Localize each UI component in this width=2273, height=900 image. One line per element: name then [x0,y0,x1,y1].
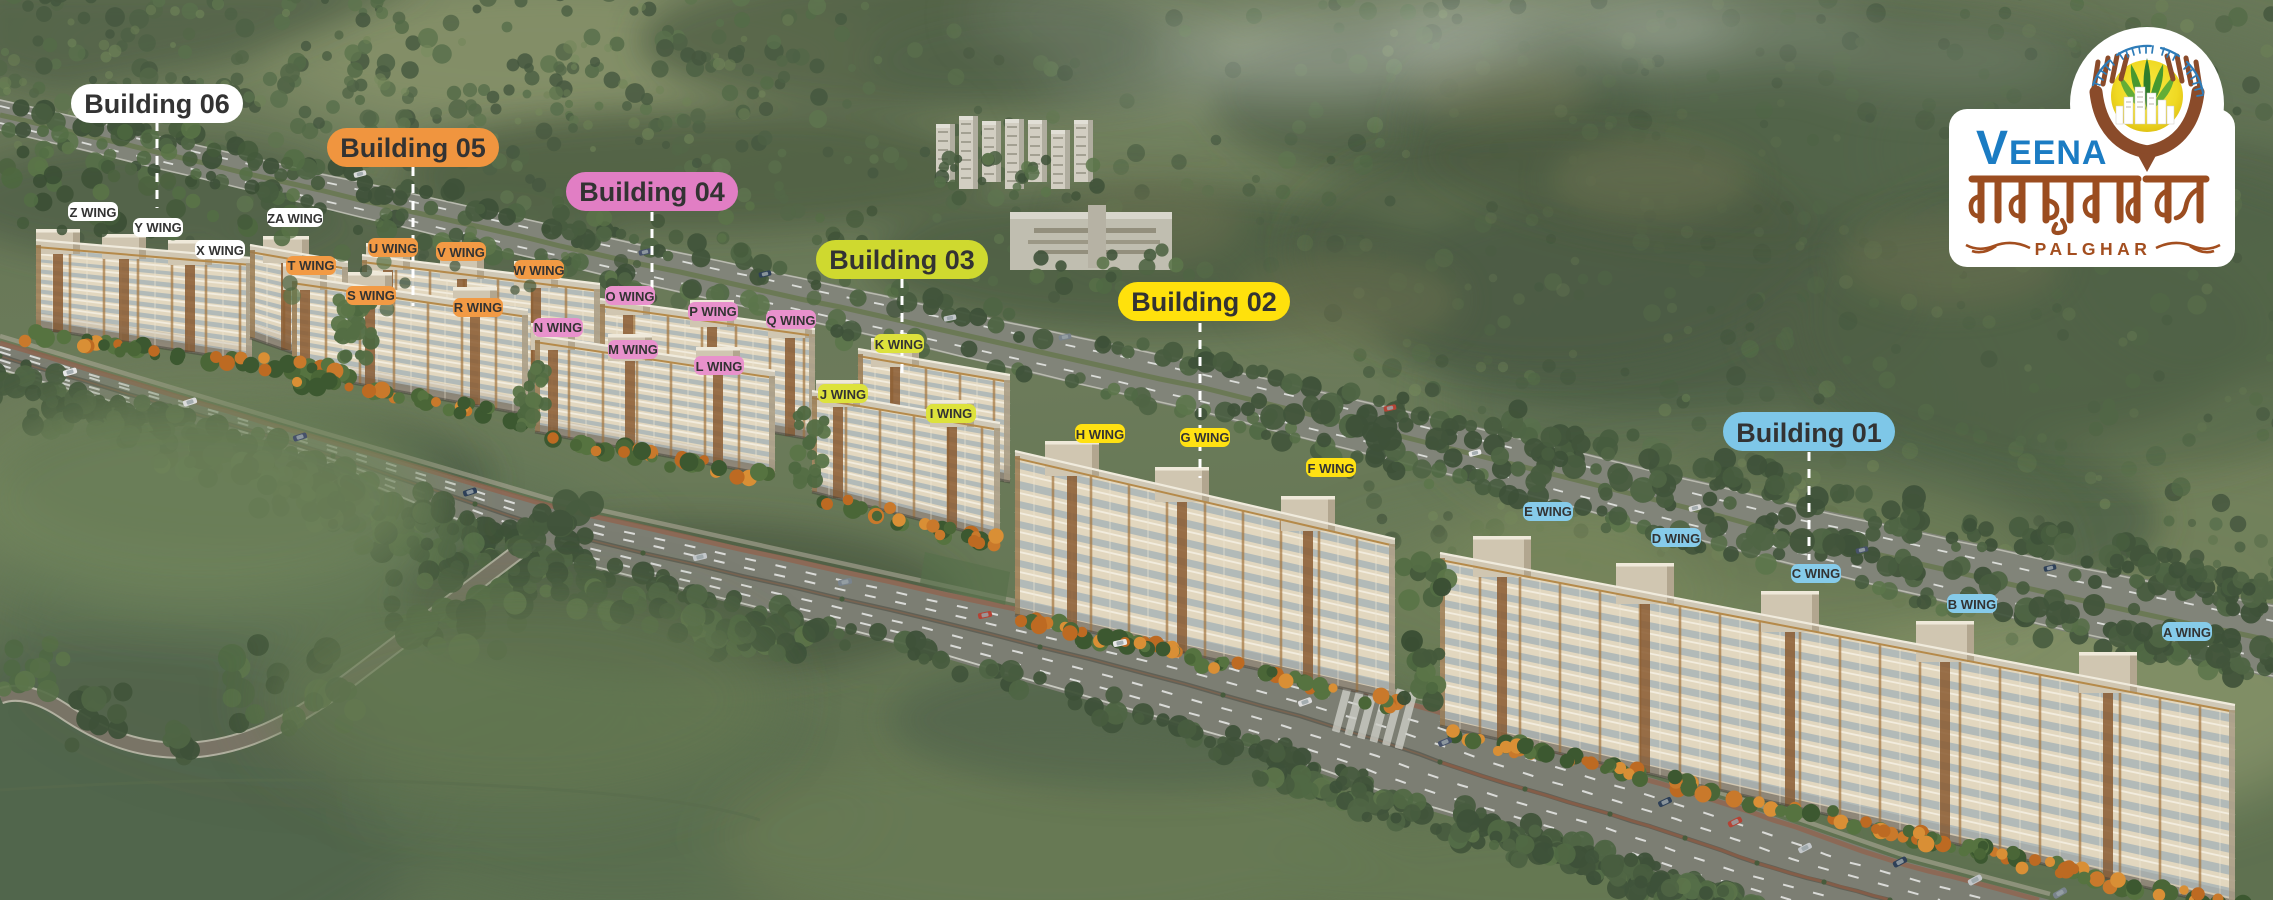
svg-text:PALGHAR: PALGHAR [2035,239,2152,259]
svg-text:Building 05: Building 05 [340,133,486,163]
svg-text:X WING: X WING [196,243,244,258]
svg-text:B WING: B WING [1948,597,1996,612]
svg-text:V WING: V WING [437,245,485,260]
svg-text:U WING: U WING [369,241,417,256]
svg-text:Building 01: Building 01 [1736,418,1882,448]
svg-text:Q WING: Q WING [766,313,815,328]
svg-text:N WING: N WING [534,320,582,335]
svg-text:Building 06: Building 06 [84,89,230,119]
svg-text:P WING: P WING [689,304,736,319]
svg-text:S WING: S WING [347,288,395,303]
svg-text:C WING: C WING [1792,566,1840,581]
svg-text:Z WING: Z WING [70,205,117,220]
svg-text:W WING: W WING [513,263,564,278]
svg-text:H WING: H WING [1076,427,1124,442]
svg-text:R WING: R WING [454,300,502,315]
svg-text:F WING: F WING [1308,461,1355,476]
svg-text:A WING: A WING [2163,625,2211,640]
svg-text:E WING: E WING [1524,504,1572,519]
svg-text:K WING: K WING [875,337,923,352]
svg-text:L WING: L WING [696,359,743,374]
svg-text:D WING: D WING [1652,531,1700,546]
svg-text:T WING: T WING [288,258,335,273]
svg-text:J WING: J WING [820,387,866,402]
svg-text:Building 04: Building 04 [579,177,725,207]
svg-text:Building 02: Building 02 [1131,287,1277,317]
svg-text:ZA WING: ZA WING [267,211,323,226]
svg-text:Y WING: Y WING [134,220,181,235]
svg-text:I WING: I WING [930,406,973,421]
svg-text:O WING: O WING [605,289,654,304]
svg-text:M WING: M WING [608,342,658,357]
svg-text:G WING: G WING [1180,430,1229,445]
svg-text:Building 03: Building 03 [829,245,975,275]
